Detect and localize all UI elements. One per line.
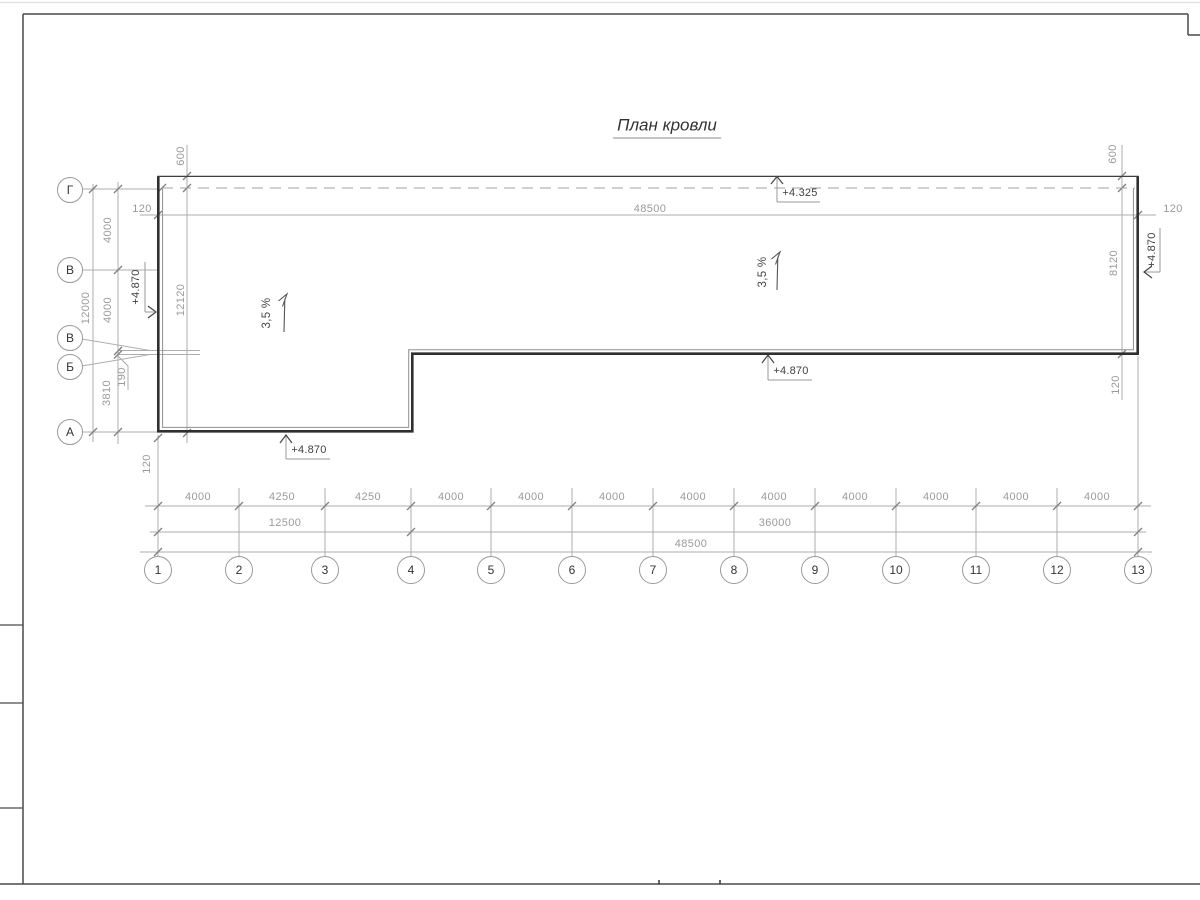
sheet-frame: [0, 3, 1200, 885]
drawing-title: План кровли: [613, 116, 721, 139]
roof-parapet-inner: [163, 188, 1134, 427]
dim-left-chain-4: 3810: [101, 380, 113, 406]
elevation-ridge: +4.325: [782, 187, 817, 199]
dim-bottom-total: 48500: [675, 538, 708, 550]
dim-parapet-left: 600: [175, 146, 187, 166]
axis-circle-4: 4: [397, 556, 425, 584]
dim-bottom-chain-1: 4000: [185, 491, 211, 503]
axis-circle-6: 6: [558, 556, 586, 584]
dim-bottom-chain-2: 4250: [269, 491, 295, 503]
dim-left-chain-1: 4000: [102, 217, 114, 243]
dim-corner-left: 120: [141, 454, 153, 474]
axis-circle-v1: В: [57, 257, 83, 283]
axis-circle-13: 13: [1124, 556, 1152, 584]
dim-bottom-chain-6: 4000: [599, 491, 625, 503]
slope-label-left: 3,5 %: [261, 298, 273, 329]
dim-bottom-chain-4: 4000: [438, 491, 464, 503]
dim-bottom-span-1-4: 12500: [269, 517, 302, 529]
dim-bottom-span-4-13: 36000: [759, 517, 792, 529]
axis-circle-1: 1: [144, 556, 172, 584]
axis-circle-7: 7: [639, 556, 667, 584]
dim-left-total: 12000: [80, 292, 92, 325]
elevation-eave-mid: +4.870: [773, 365, 808, 377]
elevation-arrowheads: [148, 177, 1152, 444]
axis-circle-9: 9: [801, 556, 829, 584]
dim-top-offset-left: 120: [132, 203, 152, 215]
roof-plan-drawing: [0, 0, 1200, 900]
dim-bottom-chain-8: 4000: [761, 491, 787, 503]
dim-left-chain-2: 4000: [102, 297, 114, 323]
dim-bottom-chain-7: 4000: [680, 491, 706, 503]
dim-bottom-chain-9: 4000: [842, 491, 868, 503]
slope-label-right: 3,5 %: [757, 257, 769, 288]
dim-parapet-right: 600: [1107, 144, 1119, 164]
dim-bottom-chain-11: 4000: [1003, 491, 1029, 503]
elevation-eave-left: +4.870: [130, 269, 142, 304]
dim-top-total: 48500: [634, 203, 667, 215]
dim-bottom-chain-3: 4250: [355, 491, 381, 503]
axis-circle-10: 10: [882, 556, 910, 584]
dim-corner-right: 120: [1110, 375, 1122, 395]
dim-top-offset-right: 120: [1163, 203, 1183, 215]
axis-circle-11: 11: [962, 556, 990, 584]
slope-arrows: [279, 252, 781, 332]
axis-circle-b: Б: [57, 354, 83, 380]
elevation-leaders: [145, 177, 1160, 460]
axis-circle-5: 5: [477, 556, 505, 584]
dim-right-height: 8120: [1108, 250, 1120, 276]
drawing-sheet: План кровли 48500 120 120 600 600 12120 …: [0, 0, 1200, 900]
dim-bottom-chain-10: 4000: [923, 491, 949, 503]
elevation-eave-right: +4.870: [1146, 232, 1158, 267]
elevation-eave-bottom: +4.870: [291, 444, 326, 456]
dim-left-chain-3: 190: [116, 367, 128, 387]
axis-circle-2: 2: [225, 556, 253, 584]
dim-bottom-chain-12: 4000: [1084, 491, 1110, 503]
axis-circle-g: Г: [57, 177, 83, 203]
dim-bottom-chain-5: 4000: [518, 491, 544, 503]
dim-left-height: 12120: [175, 284, 187, 317]
axis-circle-a: А: [57, 419, 83, 445]
axis-circle-12: 12: [1043, 556, 1071, 584]
axis-circle-v2: В: [57, 325, 83, 351]
axis-circle-8: 8: [720, 556, 748, 584]
axis-circle-3: 3: [311, 556, 339, 584]
